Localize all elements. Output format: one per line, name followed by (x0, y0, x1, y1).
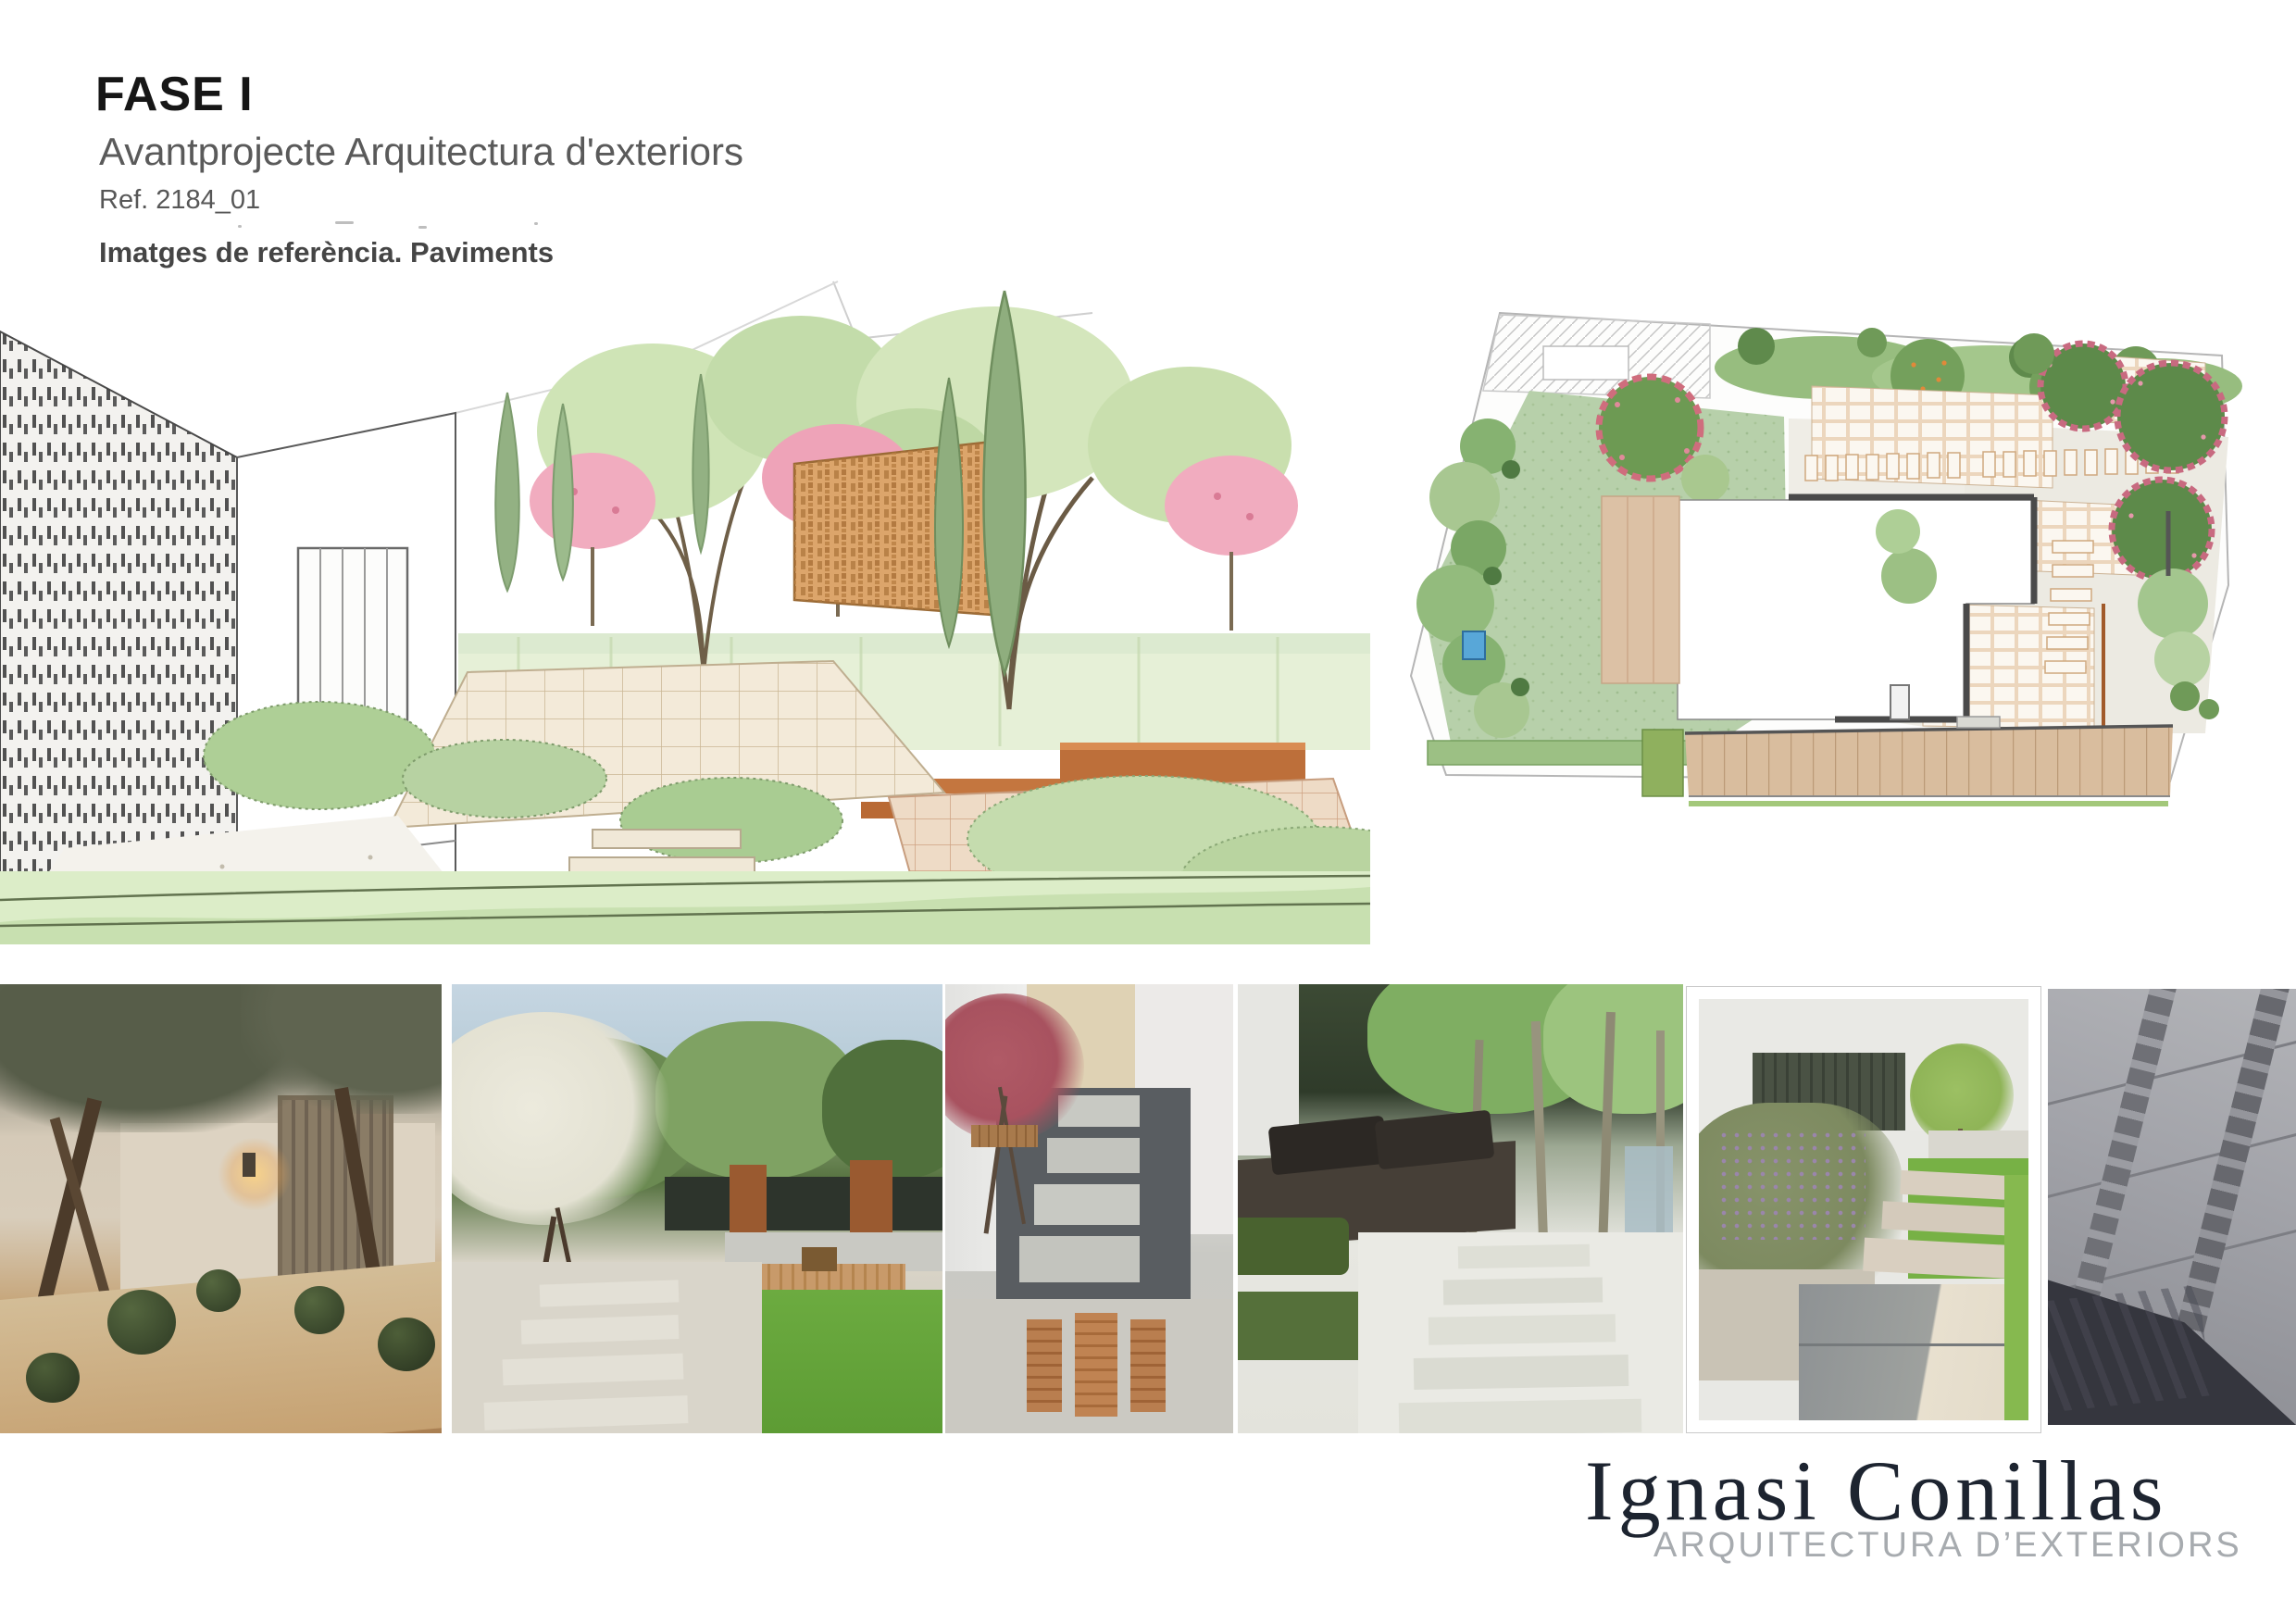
garden-perspective-sketch (0, 274, 1370, 944)
boxwood-block (1238, 1218, 1349, 1275)
fire-pit (802, 1247, 837, 1271)
stepper-slab (1443, 1278, 1603, 1305)
slab-joint-line (2048, 1127, 2296, 1201)
stepping-pad (1019, 1236, 1140, 1282)
backdrop-trees (822, 1040, 942, 1179)
house-door (1890, 685, 1909, 719)
reference-photo-2-blossom-garden (452, 984, 942, 1433)
lawn (755, 1290, 942, 1433)
stepper-slab (1414, 1355, 1629, 1390)
picnic-bench (1027, 1319, 1062, 1412)
stepping-pad (1047, 1138, 1140, 1173)
boxwood-ball (294, 1286, 344, 1334)
stepper-slab (1399, 1399, 1642, 1433)
brand-wordmark: Ignasi Conillas (1585, 1448, 2168, 1533)
reference-photo-3-gravel-passage (945, 984, 1233, 1433)
presentation-page: FASE I Avantprojecte Arquitectura d'exte… (0, 0, 2296, 1624)
phase-title: FASE I (95, 67, 1114, 122)
wall-lantern (243, 1153, 256, 1177)
fence-slat-shadow (2048, 1285, 2211, 1415)
picnic-bench (1130, 1319, 1166, 1412)
path-slab-far (1863, 1238, 2018, 1280)
reference-photo-1-courtyard-olives (0, 984, 442, 1433)
wood-bench (971, 1125, 1038, 1147)
reference-photo-4-deck-loungers (1238, 984, 1683, 1433)
dark-fence (665, 1177, 942, 1230)
boxwood-ball (107, 1290, 176, 1355)
boxwood-ball (196, 1269, 241, 1312)
section-label: Imatges de referència. Paviments (99, 236, 1114, 269)
stepper-slab (1458, 1244, 1590, 1268)
reference-number: Ref. 2184_01 (99, 185, 1114, 216)
foreground-meadow (0, 871, 1370, 944)
house-terrace (1602, 496, 1679, 683)
grass-edge (2004, 1175, 2028, 1420)
brand-tagline: ARQUITECTURA D’EXTERIORS (1653, 1526, 2242, 1566)
garden-plan (1391, 298, 2247, 822)
white-blossom-tree (452, 1012, 674, 1225)
reference-photo-5-lavender-path (1699, 999, 2028, 1420)
corten-panel (730, 1165, 767, 1241)
boxwood-block (1238, 1292, 1367, 1360)
lavender-blooms (1717, 1129, 1865, 1240)
pool (1463, 631, 1485, 659)
header: FASE I Avantprojecte Arquitectura d'exte… (95, 67, 1114, 269)
brand-logo: Ignasi Conillas ARQUITECTURA D’EXTERIORS (1574, 1441, 2277, 1598)
faded-text-artifacts (99, 219, 580, 234)
picnic-table (1075, 1313, 1117, 1417)
path-slab-near (1799, 1284, 2028, 1420)
slab-joint (1799, 1343, 2028, 1346)
boxwood-ball (26, 1353, 80, 1403)
reference-photo-6-slab-closeup (2048, 989, 2296, 1425)
stepper-slab (1429, 1314, 1616, 1345)
stepping-pad (1034, 1184, 1140, 1225)
deck-steps (1957, 717, 2000, 728)
reference-photo-5-frame (1686, 986, 2041, 1433)
project-subtitle: Avantprojecte Arquitectura d'exteriors (99, 130, 1114, 174)
boxwood-ball (378, 1318, 435, 1371)
glass-panel (1625, 1146, 1673, 1234)
corten-panel (850, 1160, 892, 1242)
